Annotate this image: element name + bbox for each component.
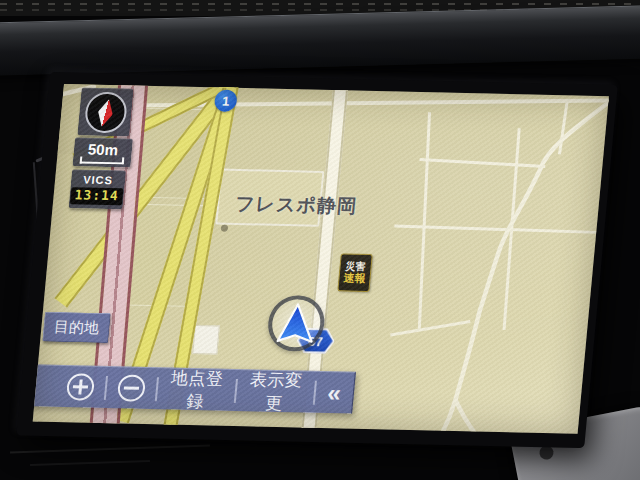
- map-place-label: フレスポ静岡: [234, 191, 358, 220]
- zoom-out-button[interactable]: [105, 367, 158, 409]
- scale-label: 50m: [87, 141, 118, 157]
- vics-widget: VICS 13:14: [69, 169, 127, 209]
- minus-circle-icon: [117, 374, 146, 402]
- reflection-streak: [10, 445, 210, 454]
- disaster-alert-line1: 災害: [345, 260, 366, 272]
- nav-screen[interactable]: フレスポ静岡 1 災害 速報 67 50m: [33, 84, 609, 434]
- disaster-alert-badge: 災害 速報: [337, 253, 373, 292]
- vehicle-position-arrow-icon: [266, 295, 327, 352]
- vics-label: VICS: [83, 175, 114, 187]
- display-change-button[interactable]: 表示変更: [235, 370, 316, 413]
- zoom-in-button[interactable]: [54, 366, 107, 408]
- plus-circle-icon: [66, 373, 95, 401]
- vics-time: 13:14: [70, 188, 124, 205]
- dashboard-photo: フレスポ静岡 1 災害 速報 67 50m: [0, 0, 640, 480]
- disaster-alert-line2: 速報: [343, 272, 366, 285]
- map-toolbar: 地点登録 表示変更 «: [33, 364, 356, 413]
- compass-widget[interactable]: [77, 87, 133, 136]
- register-point-button[interactable]: 地点登録: [156, 368, 237, 411]
- reflection-streak: [30, 460, 150, 466]
- scale-bar-icon: [80, 157, 125, 165]
- destination-button[interactable]: 目的地: [42, 312, 111, 343]
- compass-icon: [83, 92, 128, 134]
- collapse-toolbar-button[interactable]: «: [314, 372, 355, 414]
- map-scale-widget[interactable]: 50m: [72, 137, 133, 167]
